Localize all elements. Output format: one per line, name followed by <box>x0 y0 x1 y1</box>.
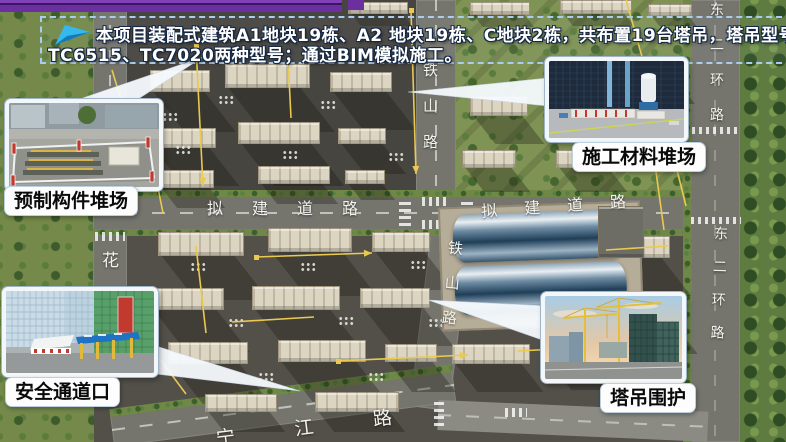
tower-crane-enclosure-photo <box>541 292 686 383</box>
material-yard-label: 施工材料堆场 <box>572 142 706 172</box>
project-description-line2: TC6515、TC7020两种型号；通过BIM模拟施工。 <box>48 41 462 66</box>
top-purple-bar <box>0 0 342 12</box>
material-beam <box>408 78 548 106</box>
safety-passage-label: 安全通道口 <box>5 377 120 407</box>
safety-passage-photo <box>2 287 158 377</box>
top-purple-chip <box>348 0 364 10</box>
precast-yard-label: 预制构件堆场 <box>4 186 138 216</box>
material-yard-photo <box>545 57 688 142</box>
precast-yard-photo <box>5 99 163 191</box>
bim-site-overview: 铁山路 铁山路 拟建道路 拟建道路 东二环路 东二环路 花 宁江路 本项目装配式… <box>0 0 786 442</box>
tower-crane-enclosure-label: 塔吊围护 <box>600 383 696 413</box>
tower-beam <box>428 300 548 342</box>
safety-beam <box>156 346 300 391</box>
